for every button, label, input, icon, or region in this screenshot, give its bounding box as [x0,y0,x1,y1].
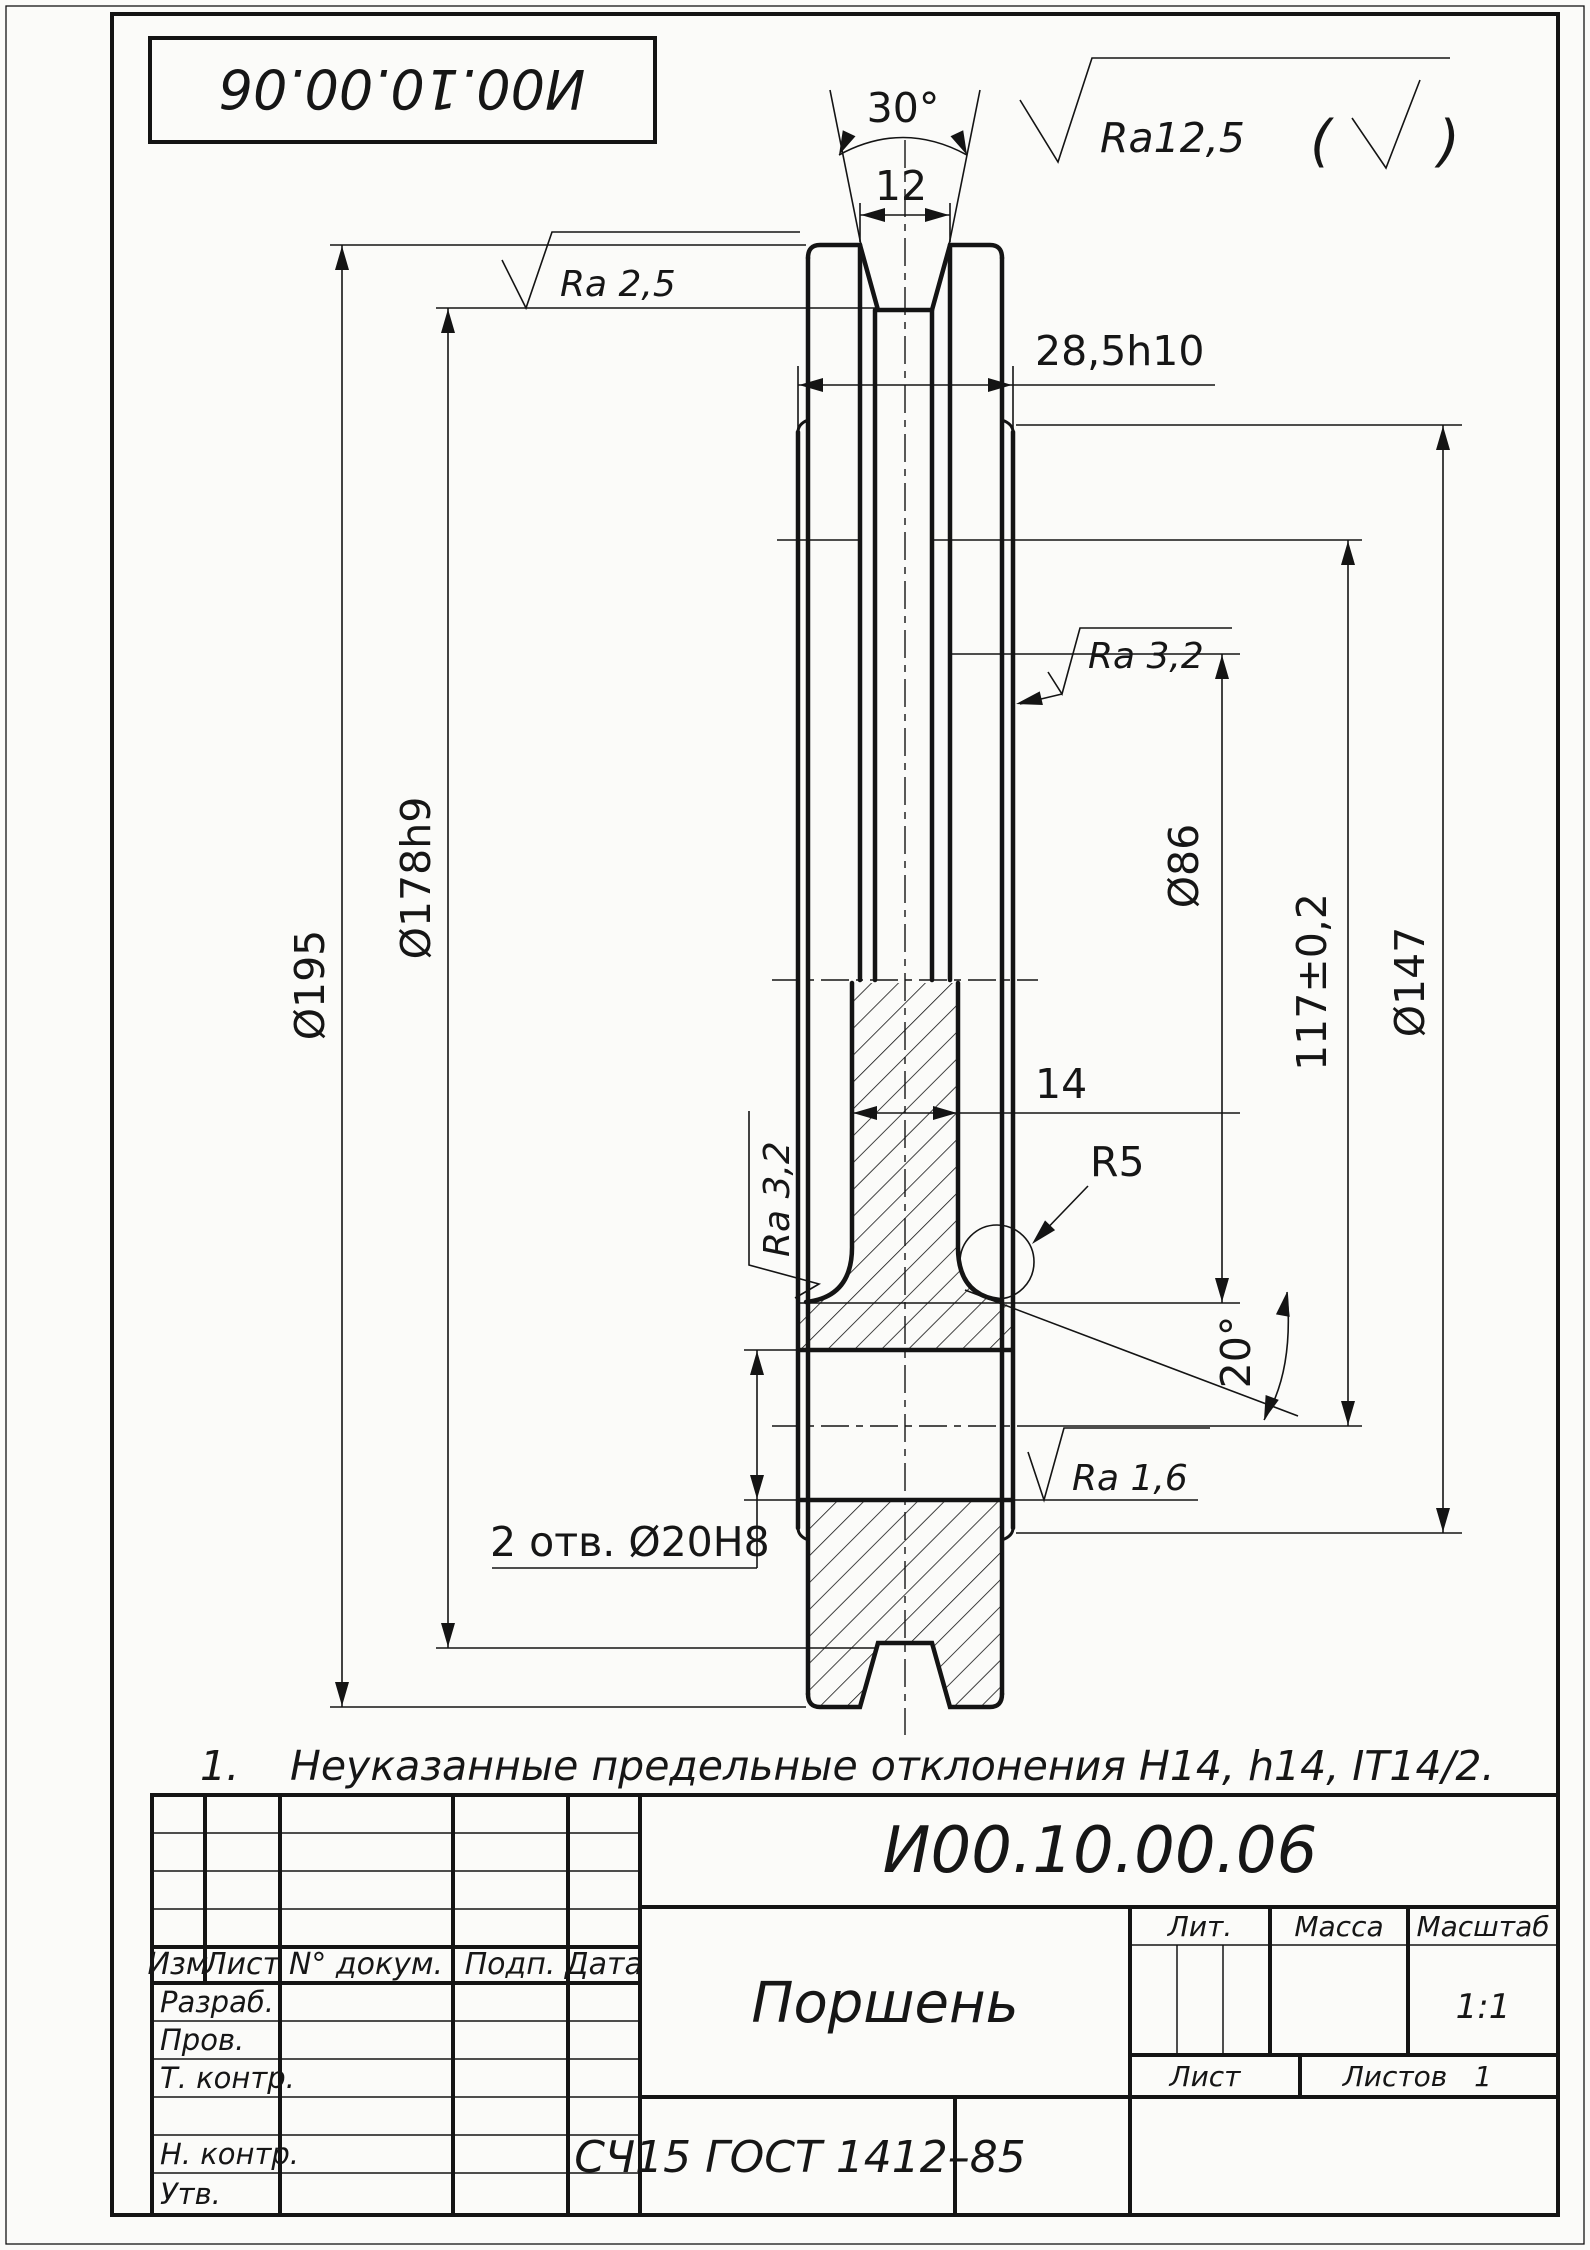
roughness-ra25: Ra 2,5 [436,232,877,308]
row-razrab: Разраб. [160,1985,274,2019]
r5-radius-circle [960,1225,1034,1299]
web-wall-right [958,983,1000,1300]
ra25-value: Ra 2,5 [560,264,676,305]
th-massa: Масса [1294,1910,1383,1943]
th-data: Дата [563,1947,643,1982]
engineering-drawing: И00.10.00.06 Ra12,5 ( ) [0,0,1590,2250]
web-wall-left [806,983,852,1302]
note-text: Неуказанные предельные отклонения H14, h… [290,1742,1495,1790]
paren-open: ( [1310,109,1334,174]
part-name: Поршень [751,1971,1018,2036]
drawing-frame [112,14,1558,2215]
dim-d147: Ø147 [1386,927,1434,1038]
row-tkontr: Т. контр. [160,2061,295,2095]
th-list2: Лист [1169,2060,1242,2093]
roughness-ra16: Ra 1,6 [1014,1428,1210,1500]
roughness-ra32-right: Ra 3,2 [1014,628,1232,711]
th-izm: Изм [147,1947,208,1982]
top-stamp-number: И00.10.00.06 [219,57,586,120]
title-block: Изм Лист N° докум. Подп. Дата Разраб. Пр… [147,1795,1558,2215]
general-roughness: Ra12,5 ( ) [1020,58,1460,174]
dim-len117: 117±0,2 [1288,893,1336,1071]
dim-d178: Ø178h9 [392,797,440,960]
dim-hub-width: 28,5h10 [1035,327,1204,375]
dim-r5: R5 [1090,1138,1145,1186]
top-stamp: И00.10.00.06 [150,38,655,142]
dim-holes: 2 отв. Ø20H8 [490,1518,770,1566]
material: СЧ15 ГОСТ 1412–85 [574,2132,1026,2183]
sheets-value: 1 [1474,2060,1492,2093]
dim-d86: Ø86 [1160,824,1208,908]
technical-note: 1. Неуказанные предельные отклонения H14… [200,1742,1495,1790]
th-doc: N° докум. [289,1947,443,1982]
th-listov: Листов [1342,2060,1448,2093]
ra32-left-value: Ra 3,2 [757,1141,798,1257]
dim-angle-top: 30° [867,84,940,132]
th-list: Лист [203,1947,282,1982]
th-lit: Лит. [1167,1910,1232,1943]
general-roughness-value: Ra12,5 [1100,114,1245,162]
dim-wall14: 14 [1035,1060,1087,1108]
th-masshtab: Масштаб [1416,1910,1549,1943]
row-prov: Пров. [160,2023,244,2057]
row-nkontr: Н. контр. [160,2137,299,2171]
dim-width-top: 12 [875,162,927,210]
note-number: 1. [200,1742,239,1790]
roughness-check-small-icon [1352,80,1420,168]
part-view [772,140,1362,1735]
drawing-sheet: И00.10.00.06 Ra12,5 ( ) [0,0,1590,2250]
dim-angle20: 20° [1212,1316,1260,1389]
scale-value: 1:1 [1456,1987,1511,2027]
row-utv: Утв. [160,2177,221,2211]
doc-number: И00.10.00.06 [883,1814,1318,1888]
dim-d195: Ø195 [286,930,334,1041]
holes-dimension: 2 отв. Ø20H8 [490,1350,796,1568]
ra16-value: Ra 1,6 [1072,1458,1188,1499]
paren-close: ) [1434,109,1460,174]
ra32-right-value: Ra 3,2 [1088,636,1204,677]
th-podp: Подп. [465,1947,556,1982]
angle30-arc [839,138,967,156]
